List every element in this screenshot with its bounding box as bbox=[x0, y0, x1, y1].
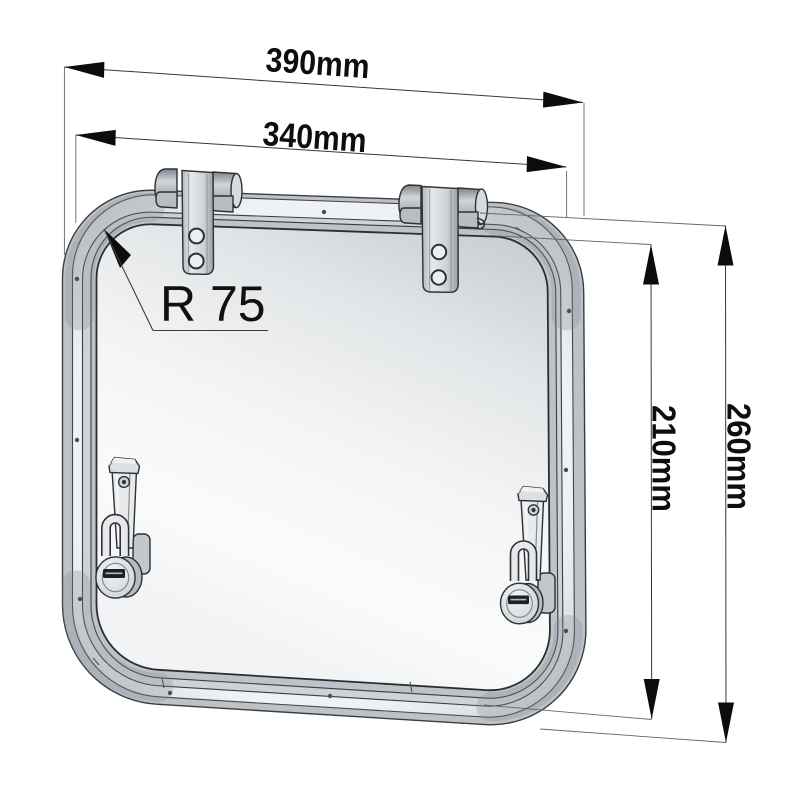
svg-text:390mm: 390mm bbox=[264, 41, 370, 86]
svg-text:R 75: R 75 bbox=[160, 276, 266, 332]
svg-text:340mm: 340mm bbox=[261, 115, 367, 160]
svg-text:260mm: 260mm bbox=[721, 403, 758, 510]
svg-text:210mm: 210mm bbox=[646, 405, 683, 512]
